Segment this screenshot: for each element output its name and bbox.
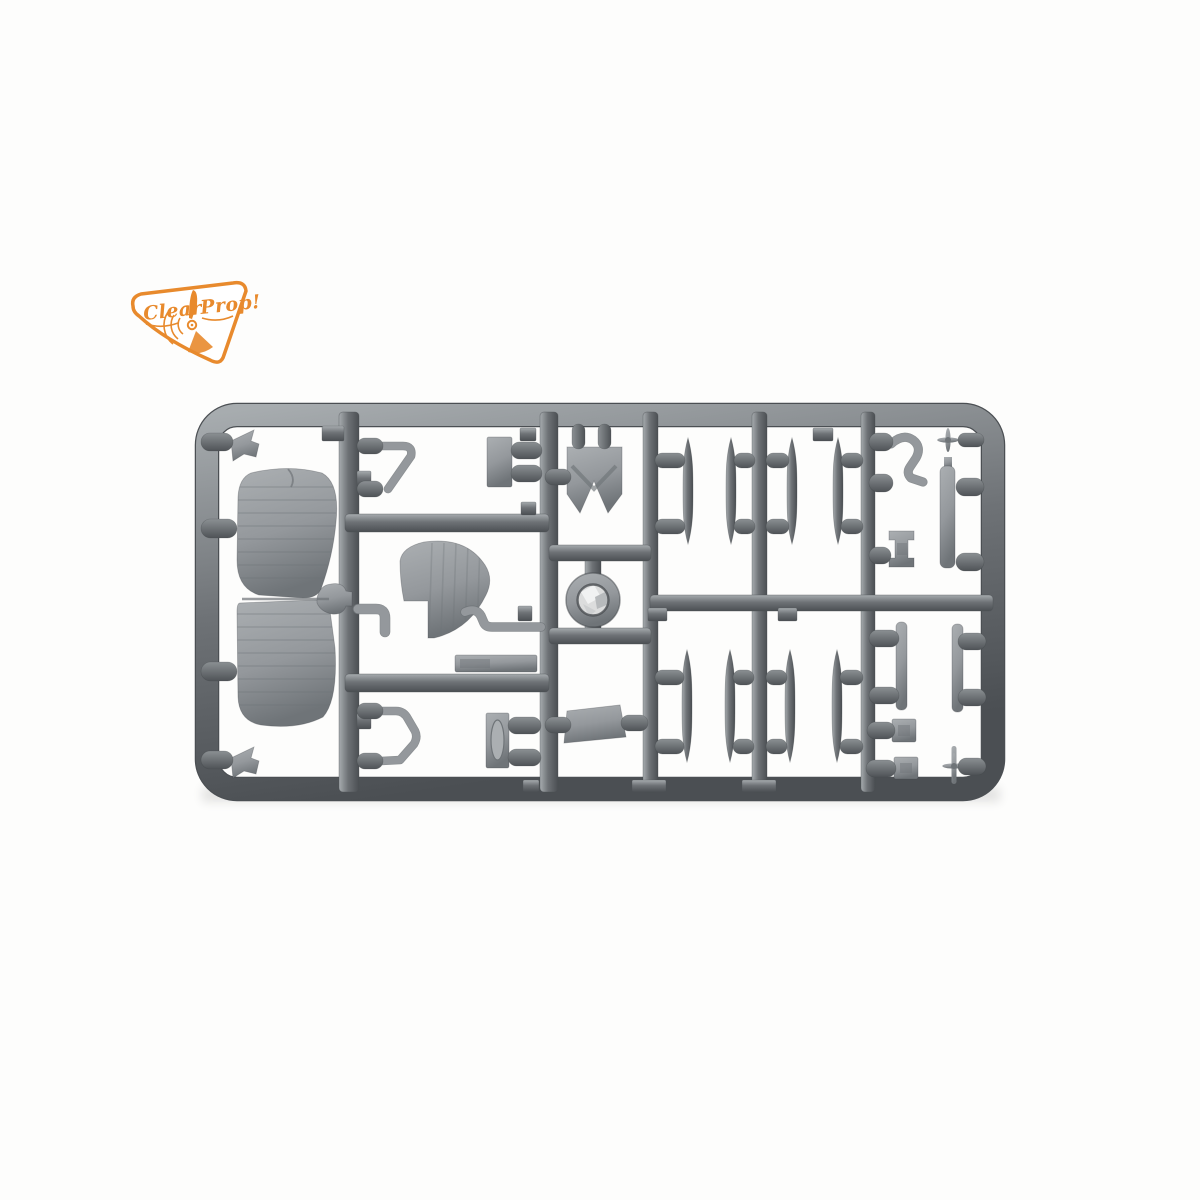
pennant-part-top [231,430,259,461]
sprue-gate [508,749,541,766]
small-plate-part [487,437,512,487]
sprue-gate [840,670,863,685]
sprue-gate [357,438,383,454]
runner-stub-tab [742,780,776,792]
sprue-gate [841,519,863,534]
sprue-gate [866,760,896,777]
sprue-gate [766,670,787,685]
tail-fin-part [400,541,490,638]
pennant-part-bottom [231,747,259,778]
sprue-gate [869,687,899,704]
sprue-gate [357,753,383,769]
sprue-gate [545,469,571,485]
sprue-gate [766,739,787,754]
sprue-gate [867,722,895,739]
sprue-gate [734,453,755,468]
sprue-gate [766,519,789,534]
fuselage-deck-part [567,447,622,513]
sprue-gate [958,758,986,775]
runner-stub-tab [521,502,536,515]
sprue-gate [869,630,899,647]
sprue-gate [201,433,233,451]
sprue-gate [621,715,648,731]
runner-stub-tab [518,606,532,621]
product-photo: Clear Prop! [0,0,1200,1200]
runner-stub-tab [523,780,539,792]
horizontal-runner [549,628,651,644]
sprue-gate [655,670,684,685]
runner-stub-tab [632,780,666,792]
sprue-gate [511,442,542,459]
sprue-gate [956,478,984,496]
sprue-gate [869,433,893,451]
sprue-gate [655,453,685,468]
runner-stub-tab [322,426,344,441]
sprue-gate [357,481,383,497]
sprue-gate [201,751,233,769]
sprue-gate [841,453,863,468]
sprue-gate [201,519,237,538]
horizontal-runner [650,595,993,611]
runner-stub-tab [813,428,833,441]
exhaust-pipe-part [891,437,923,482]
headrest-plate-part-blister [491,720,504,760]
sprue-gate [958,689,986,706]
cone-part [564,705,626,743]
mini-propeller-part-top-hub [945,437,951,443]
sprue-gate [869,474,893,492]
sprue-gate [655,739,684,754]
sprue-gate [655,519,685,534]
horizontal-runner [549,545,651,561]
sprue-gate [572,424,585,449]
horizontal-runner [345,674,549,692]
sprue-gate [869,547,891,564]
strip-part-a-recess [460,659,490,668]
sprue-gate [840,739,863,754]
bent-rod-part-left [358,609,385,632]
sprue-gate [958,433,984,447]
runner-stub-tab [778,608,797,621]
bracket-part-recess [897,543,907,555]
runner-stub-tab [520,428,536,441]
sprue-gate [508,717,541,734]
sprue-gate [545,717,571,733]
square-part-b-recess [900,763,912,773]
mini-propeller-part-bottom-hub [951,763,957,769]
square-part-a-recess [898,725,910,736]
sprue-gate [733,739,754,754]
clear-prop-logo: Clear Prop! [133,283,262,362]
horizontal-runner [345,514,549,532]
sprue-gate [956,553,984,571]
runner-stub-tab [648,608,667,621]
sprue-gate [766,453,789,468]
sprue-gate [357,703,383,719]
sprue-gate [958,633,986,650]
sprue-gate [201,662,237,681]
lower-wing-part [237,600,336,726]
sprue-gate [733,670,754,685]
sprue-gate [598,424,611,449]
sprue-photo-canvas: Clear Prop! [0,0,1200,1200]
sprue-gate [511,465,542,482]
windscreen-frame-part-top [381,446,411,489]
sprue-gate [734,519,755,534]
long-strip-part [940,466,955,568]
